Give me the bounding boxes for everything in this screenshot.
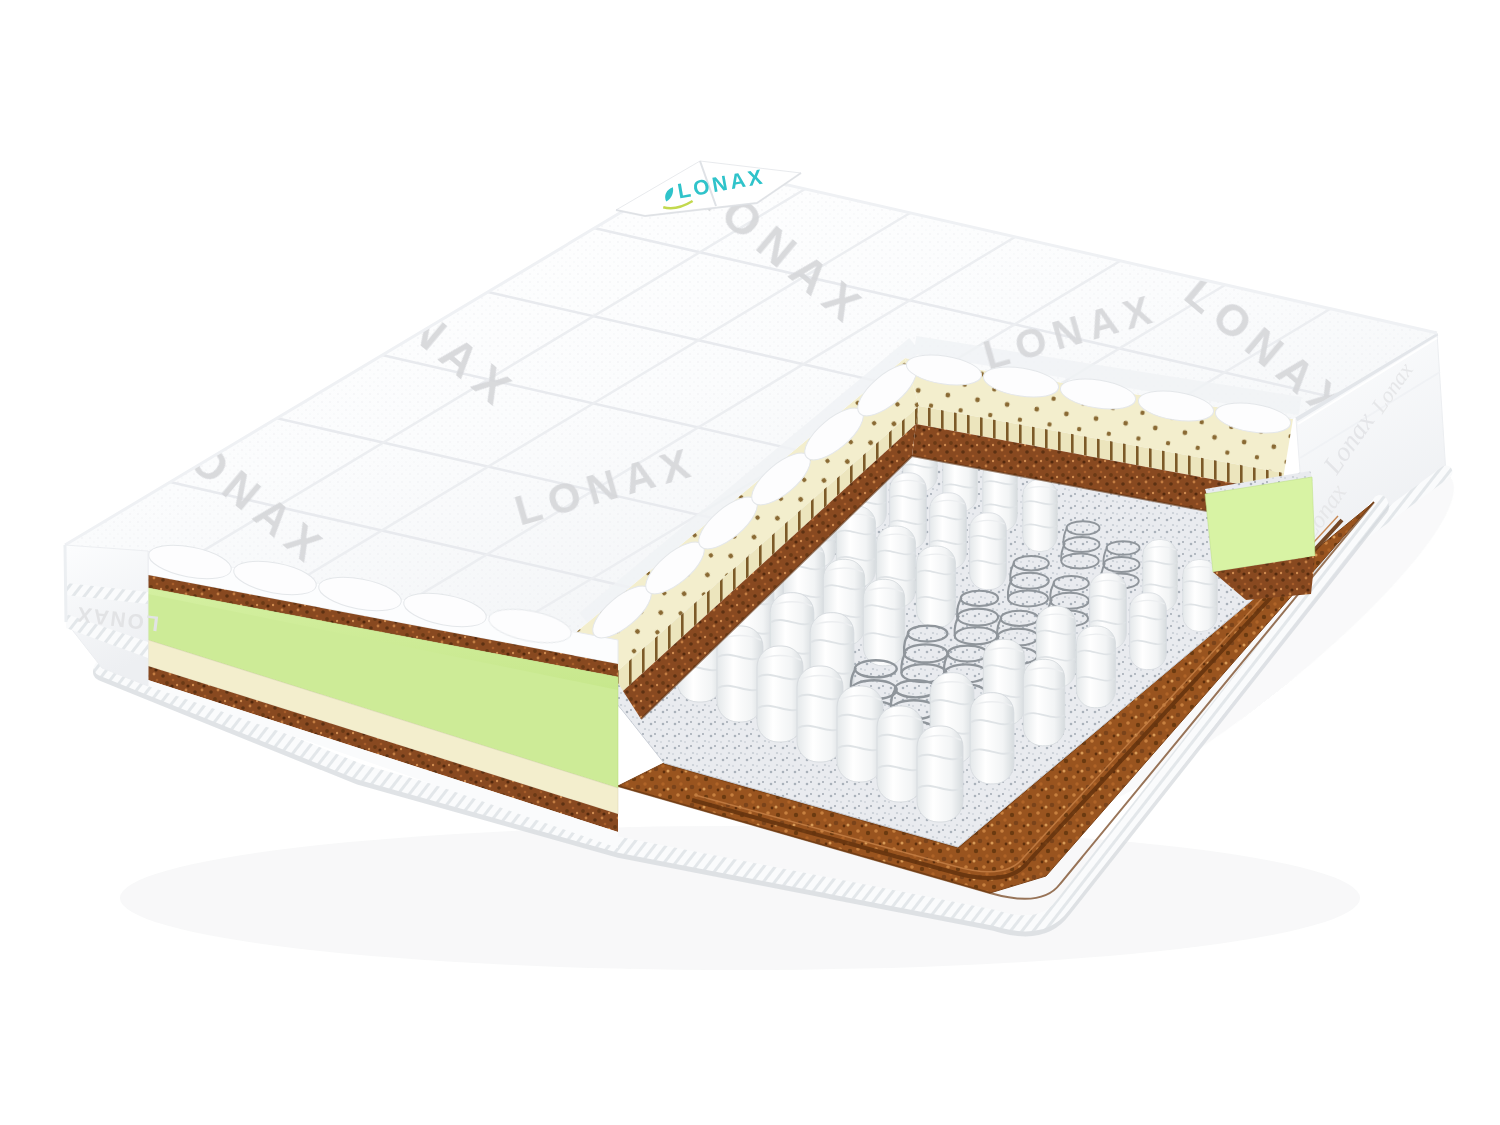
foam-block-face [1205,477,1315,572]
left-side-band: LONAX [65,545,160,686]
product-photo-stage: Lonax Lonax Lonax [0,0,1500,1125]
mattress-cutaway-photo: Lonax Lonax Lonax [0,0,1500,1125]
